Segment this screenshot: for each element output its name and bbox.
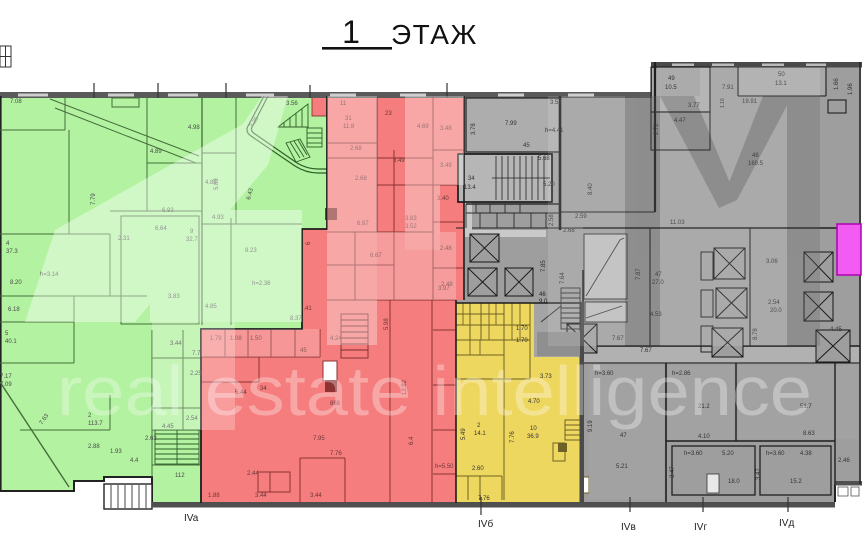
svg-text:4.89: 4.89 xyxy=(150,149,162,155)
svg-text:9.0: 9.0 xyxy=(539,299,548,305)
svg-text:36.9: 36.9 xyxy=(527,434,539,440)
svg-text:5.20: 5.20 xyxy=(722,451,734,457)
svg-text:8.63: 8.63 xyxy=(803,431,815,437)
svg-text:7.85: 7.85 xyxy=(541,260,547,272)
svg-text:7.76: 7.76 xyxy=(478,496,490,502)
svg-text:23: 23 xyxy=(385,111,392,117)
svg-text:8.20: 8.20 xyxy=(10,280,22,286)
svg-text:4.45: 4.45 xyxy=(830,327,842,333)
svg-text:3.44: 3.44 xyxy=(255,493,267,499)
svg-text:IVa: IVa xyxy=(184,513,199,524)
svg-text:3.78: 3.78 xyxy=(471,123,477,135)
svg-text:h=5.50: h=5.50 xyxy=(435,464,454,470)
svg-text:1: 1 xyxy=(342,14,360,50)
svg-text:3.44: 3.44 xyxy=(310,493,322,499)
svg-text:2.88: 2.88 xyxy=(88,444,100,450)
svg-text:IVд: IVд xyxy=(779,518,794,529)
svg-text:46: 46 xyxy=(539,292,546,298)
svg-text:18.0: 18.0 xyxy=(728,479,740,485)
svg-text:13.4: 13.4 xyxy=(464,185,476,191)
svg-text:2.46: 2.46 xyxy=(838,458,850,464)
svg-text:2.60: 2.60 xyxy=(472,466,484,472)
svg-text:7.95: 7.95 xyxy=(313,436,325,442)
svg-text:1.70: 1.70 xyxy=(516,326,528,332)
svg-text:1.93: 1.93 xyxy=(110,449,122,455)
svg-text:10.5: 10.5 xyxy=(665,85,677,91)
svg-text:1.70: 1.70 xyxy=(516,338,528,344)
svg-text:6.18: 6.18 xyxy=(8,307,20,313)
svg-text:IVб: IVб xyxy=(478,518,493,530)
svg-text:47: 47 xyxy=(620,433,627,439)
svg-text:1.96: 1.96 xyxy=(848,83,854,95)
svg-text:7.08: 7.08 xyxy=(10,99,22,105)
svg-text:4.4: 4.4 xyxy=(130,458,139,464)
svg-text:7.17: 7.17 xyxy=(0,374,12,380)
svg-text:7.79: 7.79 xyxy=(91,193,97,205)
svg-text:5.21: 5.21 xyxy=(616,464,628,470)
svg-text:real estate intelligence: real estate intelligence xyxy=(57,352,812,430)
svg-text:7.09: 7.09 xyxy=(0,382,12,388)
svg-text:5.98: 5.98 xyxy=(384,318,390,330)
svg-text:1.66: 1.66 xyxy=(834,78,840,90)
svg-text:15.2: 15.2 xyxy=(790,479,802,485)
svg-text:h=3.60: h=3.60 xyxy=(684,451,703,457)
svg-text:4.98: 4.98 xyxy=(188,125,200,131)
svg-text:1.88: 1.88 xyxy=(208,493,220,499)
svg-text:ЭТАЖ: ЭТАЖ xyxy=(391,19,478,50)
svg-text:2.63: 2.63 xyxy=(145,436,157,442)
svg-text:7.76: 7.76 xyxy=(510,431,516,443)
svg-text:112: 112 xyxy=(175,473,185,479)
svg-text:IVг: IVг xyxy=(694,522,707,533)
svg-text:37.3: 37.3 xyxy=(6,249,18,255)
svg-text:40.1: 40.1 xyxy=(5,339,17,345)
svg-text:3.49: 3.49 xyxy=(393,158,405,164)
svg-text:3.56: 3.56 xyxy=(286,101,298,107)
svg-text:49: 49 xyxy=(668,76,675,82)
svg-text:IVв: IVв xyxy=(621,522,636,533)
svg-text:4.10: 4.10 xyxy=(698,434,710,440)
svg-text:34: 34 xyxy=(468,176,475,182)
svg-text:45: 45 xyxy=(523,143,530,149)
svg-text:7.99: 7.99 xyxy=(505,121,517,127)
svg-text:3.47: 3.47 xyxy=(670,466,676,478)
svg-text:3.47: 3.47 xyxy=(756,468,762,480)
svg-text:4.38: 4.38 xyxy=(800,451,812,457)
svg-text:14.1: 14.1 xyxy=(474,431,486,437)
svg-text:7.76: 7.76 xyxy=(330,451,342,457)
svg-text:6.4: 6.4 xyxy=(409,436,415,445)
svg-text:h=3.60: h=3.60 xyxy=(766,451,785,457)
svg-text:2.44: 2.44 xyxy=(247,471,259,477)
